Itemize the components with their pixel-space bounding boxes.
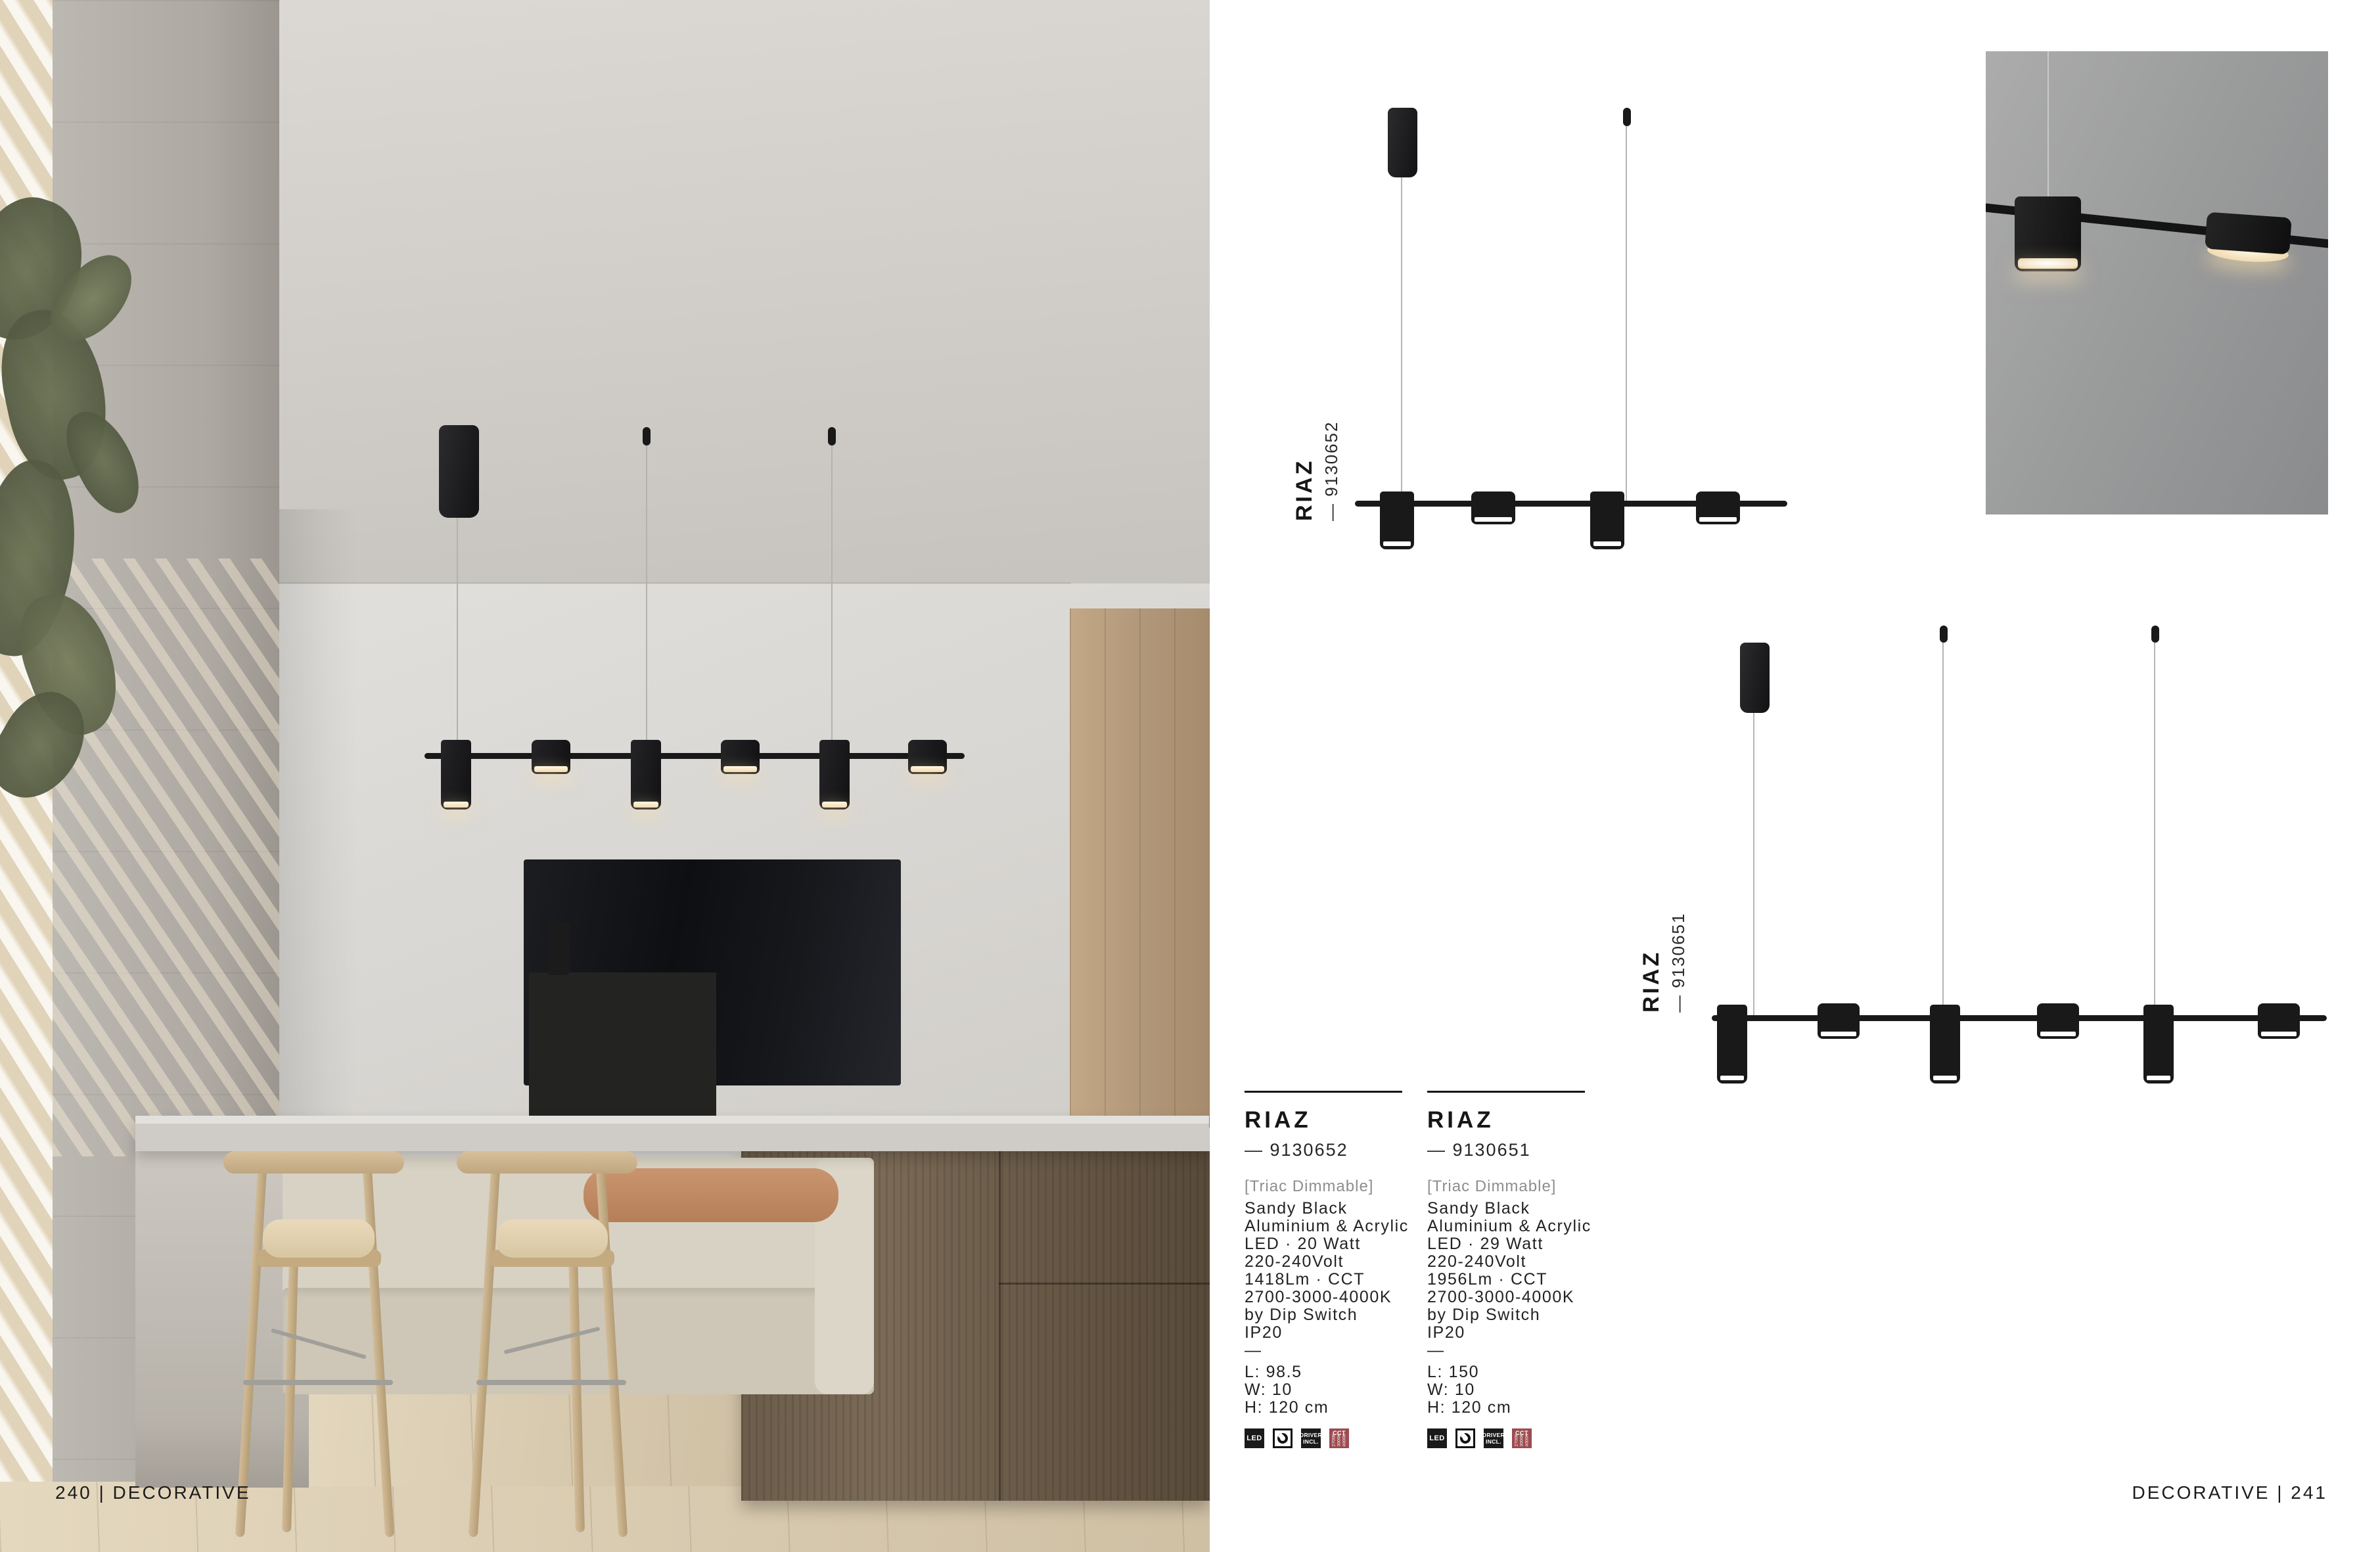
led-badge-icon: LED xyxy=(1245,1428,1264,1448)
cabinet-seam xyxy=(999,1151,1001,1501)
product-code: — 9130651 xyxy=(1427,1140,1593,1160)
spec-line: 220-240Volt xyxy=(1245,1253,1410,1271)
drawing-cable xyxy=(1626,126,1627,502)
product-name: RIAZ xyxy=(1427,1107,1593,1133)
spec-rule xyxy=(1245,1091,1402,1093)
drawing-label-name: RIAZ xyxy=(1639,898,1664,1013)
pendant-disc-light xyxy=(532,740,570,774)
bar-stool xyxy=(457,1151,637,1532)
inset-disc-light xyxy=(2205,212,2292,255)
drawing-disc-head xyxy=(1471,491,1515,524)
drawing-disc-head xyxy=(2258,1003,2300,1039)
dimension-line: H: 120 cm xyxy=(1427,1399,1593,1417)
drawing-cylinder-head xyxy=(1930,1005,1960,1084)
suspension-cable xyxy=(646,445,647,753)
wood-grain xyxy=(1070,608,1210,1128)
dimension-line: W: 10 xyxy=(1427,1381,1593,1399)
dimension-lines: L: 98.5 W: 10 H: 120 cm xyxy=(1245,1363,1410,1417)
drawing-disc-head xyxy=(1696,491,1740,524)
driver-included-badge-icon: DRIVERINCL. xyxy=(1484,1428,1503,1448)
drawing-disc-head xyxy=(1818,1003,1860,1039)
inset-suspension-cable xyxy=(2048,51,2049,202)
stool-leg xyxy=(469,1170,500,1538)
suspension-cable xyxy=(457,518,458,753)
pendant-disc-light xyxy=(721,740,760,774)
spec-line: 1956Lm · CCT xyxy=(1427,1271,1593,1289)
stool-cushion xyxy=(496,1220,608,1258)
dimmable-badge-icon xyxy=(1455,1428,1475,1448)
drawing-cable xyxy=(1401,177,1402,502)
drawing-label-code: — 9130651 xyxy=(1668,898,1689,1013)
cct-badge-icon: CCT 2700K 3000K 4000K xyxy=(1512,1428,1532,1448)
stool-footrest-brace xyxy=(504,1327,601,1354)
drawing-label-name: RIAZ xyxy=(1292,406,1317,521)
spec-divider: — xyxy=(1427,1342,1593,1359)
drawing-cylinder-head xyxy=(1380,491,1414,549)
spec-rule xyxy=(1427,1091,1585,1093)
pendant-disc-light xyxy=(908,740,947,774)
stool-leg xyxy=(568,1256,585,1532)
dimension-line: H: 120 cm xyxy=(1245,1399,1410,1417)
product-spec-9130651: RIAZ — 9130651 [Triac Dimmable] Sandy Bl… xyxy=(1427,1091,1593,1448)
suspension-cable xyxy=(831,445,833,753)
product-code: — 9130652 xyxy=(1245,1140,1410,1160)
spec-lines: Sandy Black Aluminium & Acrylic LED · 29… xyxy=(1427,1200,1593,1342)
dimension-lines: L: 150 W: 10 H: 120 cm xyxy=(1427,1363,1593,1417)
drawing-cable xyxy=(2154,643,2155,1016)
detail-photo xyxy=(1986,51,2328,514)
ceiling-canopy-cylinder xyxy=(439,425,479,518)
spec-line: by Dip Switch xyxy=(1427,1306,1593,1324)
led-badge-icon: LED xyxy=(1427,1428,1447,1448)
kitchen-photo: 240 | DECORATIVE xyxy=(0,0,1210,1552)
drawing-disc-head xyxy=(2037,1003,2079,1039)
pendant-bar xyxy=(424,753,965,759)
spec-line: 220-240Volt xyxy=(1427,1253,1593,1271)
dimmable-badge-icon xyxy=(1273,1428,1293,1448)
spec-line: Sandy Black xyxy=(1245,1200,1410,1218)
speaker xyxy=(547,921,570,975)
drawing-suspension-peg xyxy=(1623,108,1631,126)
stool-leg xyxy=(282,1256,298,1532)
ceiling-suspension-peg xyxy=(828,427,836,445)
dimming-label: [Triac Dimmable] xyxy=(1427,1177,1593,1196)
dimension-line: L: 98.5 xyxy=(1245,1363,1410,1381)
spec-line: LED · 20 Watt xyxy=(1245,1235,1410,1253)
dimming-label: [Triac Dimmable] xyxy=(1245,1177,1410,1196)
stool-footrest xyxy=(243,1380,393,1385)
spec-line: Aluminium & Acrylic xyxy=(1427,1218,1593,1235)
product-name: RIAZ xyxy=(1245,1107,1410,1133)
wood-cabinets xyxy=(1070,608,1210,1128)
dimmer-dial-icon xyxy=(1277,1433,1288,1444)
ceiling-suspension-peg xyxy=(643,427,651,445)
spec-line: IP20 xyxy=(1245,1324,1410,1342)
page-footer-right: DECORATIVE | 241 xyxy=(2132,1482,2328,1503)
spec-line: 2700-3000-4000K xyxy=(1427,1289,1593,1306)
dimension-line: L: 150 xyxy=(1427,1363,1593,1381)
stool-footrest-brace xyxy=(271,1328,367,1359)
spec-line: Sandy Black xyxy=(1427,1200,1593,1218)
dimension-line: W: 10 xyxy=(1245,1381,1410,1399)
stool-footrest xyxy=(476,1380,626,1385)
spec-line: 2700-3000-4000K xyxy=(1245,1289,1410,1306)
feature-badges: LED DRIVERINCL. CCT 2700K 3000K 4000K xyxy=(1427,1428,1593,1448)
stool-backrest xyxy=(223,1151,404,1174)
product-spec-9130652: RIAZ — 9130652 [Triac Dimmable] Sandy Bl… xyxy=(1245,1091,1410,1448)
cabinet-seam xyxy=(999,1283,1210,1285)
pendant-cylinder-light xyxy=(631,740,661,810)
pendant-cylinder-light xyxy=(441,740,471,810)
driver-included-badge-icon: DRIVERINCL. xyxy=(1301,1428,1321,1448)
spec-line: Aluminium & Acrylic xyxy=(1245,1218,1410,1235)
drawing-cylinder-head xyxy=(1590,491,1624,549)
drawing-suspension-peg xyxy=(1940,626,1948,643)
wall-recess-shadow xyxy=(279,509,358,1117)
dimmer-dial-icon xyxy=(1460,1433,1471,1444)
drawing-canopy-cylinder xyxy=(1388,108,1417,177)
drawing-bar xyxy=(1712,1015,2327,1021)
drawing-label-9130651: RIAZ — 9130651 xyxy=(1639,898,1694,1013)
wall-ceiling-line xyxy=(279,582,1071,584)
pendant-cylinder-light xyxy=(819,740,850,810)
spec-line: by Dip Switch xyxy=(1245,1306,1410,1324)
drawing-cable xyxy=(1753,713,1754,1016)
drawing-label-9130652: RIAZ — 9130652 xyxy=(1292,406,1347,521)
catalog-page: 240 | DECORATIVE RIAZ — 9130652 RIAZ — 9… xyxy=(0,0,2380,1552)
bar-stool xyxy=(223,1151,404,1532)
drawing-label-code: — 9130652 xyxy=(1321,406,1342,521)
drawing-canopy-cylinder xyxy=(1740,643,1770,713)
drawing-cylinder-head xyxy=(1717,1005,1747,1084)
drawing-cable xyxy=(1942,643,1944,1016)
stool-backrest xyxy=(457,1151,637,1174)
drawing-cylinder-head xyxy=(2143,1005,2174,1084)
spec-lines: Sandy Black Aluminium & Acrylic LED · 20… xyxy=(1245,1200,1410,1342)
spec-line: 1418Lm · CCT xyxy=(1245,1271,1410,1289)
page-footer-left: 240 | DECORATIVE xyxy=(55,1482,251,1503)
spec-line: IP20 xyxy=(1427,1324,1593,1342)
inset-cylinder-light xyxy=(2015,196,2081,271)
cct-badge-icon: CCT 2700K 3000K 4000K xyxy=(1329,1428,1349,1448)
kitchen-counter xyxy=(135,1116,1209,1151)
spec-line: LED · 29 Watt xyxy=(1427,1235,1593,1253)
media-console xyxy=(529,972,716,1118)
stool-cushion xyxy=(263,1220,375,1258)
feature-badges: LED DRIVERINCL. CCT 2700K 3000K 4000K xyxy=(1245,1428,1410,1448)
spec-divider: — xyxy=(1245,1342,1410,1359)
drawing-suspension-peg xyxy=(2151,626,2159,643)
